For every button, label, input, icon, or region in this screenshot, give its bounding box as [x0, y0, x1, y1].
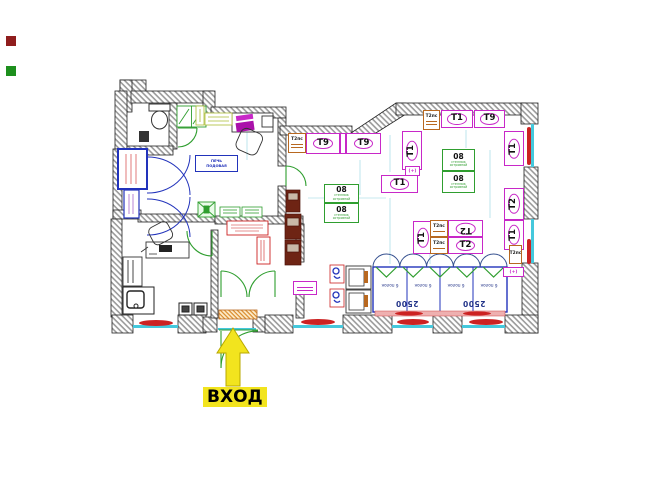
tag-t9-1: Т9 — [306, 133, 340, 154]
toilet — [149, 104, 170, 129]
green-mini-labels — [220, 207, 262, 217]
legend-mark-green — [6, 66, 16, 76]
tag-t2-1: Т2 — [504, 188, 524, 220]
display-shelf-label-1: 6 полок — [377, 283, 403, 288]
display-shelf-label-3: 6 полок — [443, 283, 469, 288]
tag-t9-1-text: Т9 — [313, 138, 333, 150]
racktag-08-4: 08стеллажостровной — [442, 171, 475, 193]
display-shelf-label-4: 6 полок — [476, 283, 502, 288]
display-width-label-2: 2500 — [459, 299, 489, 308]
techtag-t2ps-4: Т2пс — [430, 237, 448, 254]
tag-t1-4: Т1 — [504, 131, 524, 166]
oven-label-box: ПЕЧЬПОДОВАЯ — [195, 155, 238, 172]
techtag-t2ps-5: Т2пс — [509, 245, 522, 264]
racktag-08-2: 08стеллажостровной — [324, 203, 359, 223]
office1-cabinet — [123, 257, 142, 286]
display-shelf-label-2: 6 полок — [410, 283, 436, 288]
ovens-stack — [285, 190, 301, 265]
stools — [179, 303, 207, 315]
techtag-t2ps-1: Т2пс — [288, 133, 306, 153]
display-width-label-1: 2500 — [392, 299, 422, 308]
techtag-t2ps-2: Т2пс — [423, 110, 440, 130]
entry-note-box — [293, 281, 317, 295]
green-junction-box — [198, 202, 215, 217]
tag-t1-3: Т1 — [381, 175, 418, 193]
tag-t1-1: Т1 — [441, 110, 473, 128]
office2-desk — [232, 113, 273, 157]
tag-t1-2: Т1 — [402, 131, 422, 170]
tag-plus-1: (+) — [405, 166, 420, 176]
racktag-08-1: 08стеллажостровной — [324, 184, 359, 203]
wc-sink — [139, 131, 149, 142]
red-spec-boxes — [227, 221, 270, 264]
racktag-08-3: 08стеллажостровной — [442, 149, 475, 171]
wash-unit — [123, 287, 154, 314]
tag-plus-2: (+) — [503, 267, 524, 277]
tag-t2-2: Т2 — [448, 220, 483, 237]
hand-sinks — [330, 265, 344, 307]
entrance-label: ВХОД — [203, 387, 267, 407]
floorplan: Т9 Т9 Т1 Т9 Т1 Т1 Т1 Т2 Т1 Т1 Т2 Т2 (+) … — [0, 0, 653, 489]
tag-t9-3: Т9 — [474, 110, 505, 128]
entrance-mat — [219, 310, 257, 319]
legend-mark-red — [6, 36, 16, 46]
tag-t9-2: Т9 — [346, 133, 381, 154]
techtag-t2ps-3: Т2пс — [430, 220, 448, 237]
tag-t2-3: Т2 — [448, 237, 483, 254]
floorplan-drawing — [0, 0, 653, 489]
office1-desk — [141, 220, 189, 258]
entrance-arrow — [217, 328, 249, 386]
fridges — [346, 266, 371, 313]
